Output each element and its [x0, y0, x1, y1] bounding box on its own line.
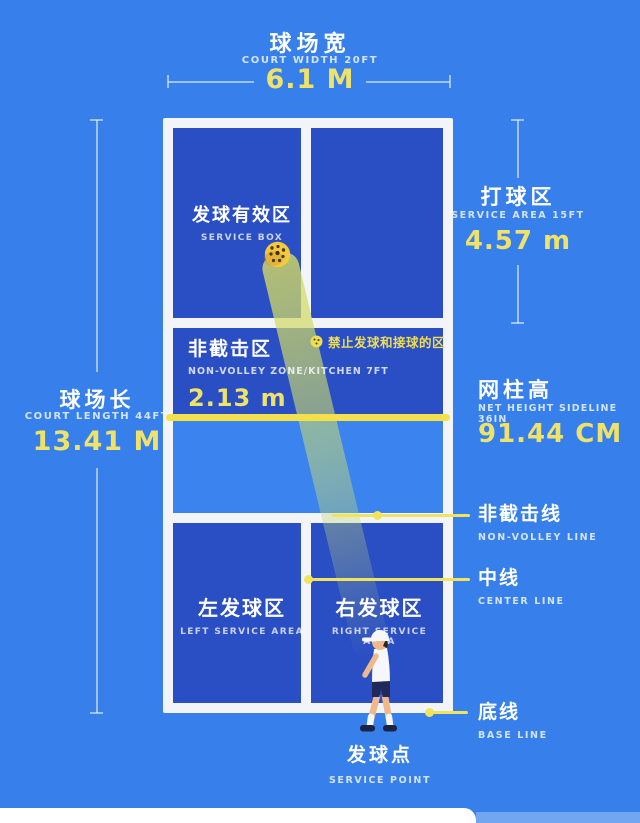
service-area-value: 4.57 m: [465, 226, 571, 256]
left-measure-value-wrap: 13.41 M: [17, 426, 177, 457]
non-volley-line-label-cn: 非截击线: [478, 499, 597, 526]
kitchen-label-en: NON-VOLLEY ZONE/KITCHEN 7FT: [188, 366, 389, 377]
top-measure-tick-left: [167, 75, 169, 88]
pickleball-icon: [264, 241, 291, 268]
far-right-service-box: [311, 128, 443, 318]
service-area-tick-top: [511, 119, 524, 121]
top-measure-value-wrap: 6.1 M: [0, 64, 620, 95]
net-line: [166, 414, 450, 421]
service-area-line-bottom: [517, 265, 519, 323]
base-line-callout: [429, 711, 468, 714]
left-service-label-cn: 左发球区: [178, 592, 306, 621]
center-line-label: 中线 CENTER LINE: [478, 563, 565, 607]
player-figure: [350, 626, 410, 738]
center-line-label-cn: 中线: [478, 563, 565, 590]
service-area-value-wrap: 4.57 m: [438, 226, 598, 256]
service-box-label-en: SERVICE BOX: [178, 233, 306, 243]
no-serve-note-text: 禁止发球和接球的区: [328, 332, 445, 351]
net-height-label-cn: 网柱高: [478, 374, 553, 404]
left-measure-line-top: [96, 120, 98, 372]
base-line-label-en: BASE LINE: [478, 730, 548, 741]
small-ball-icon: [310, 335, 323, 348]
center-line-label-en: CENTER LINE: [478, 596, 565, 607]
court-length-label-cn: 球场长: [17, 384, 177, 414]
service-area-title: 打球区: [438, 181, 598, 211]
non-volley-line-dot: [373, 511, 382, 520]
center-line-callout: [308, 578, 470, 581]
pickleball-court-infographic: 球场宽 COURT WIDTH 20FT 6.1 M 球场长 COURT LEN…: [0, 0, 640, 823]
service-area-tick-bottom: [511, 322, 524, 324]
center-line-dot: [304, 575, 313, 584]
top-measure-line-left: [168, 81, 254, 83]
non-volley-line-label: 非截击线 NON-VOLLEY LINE: [478, 499, 597, 543]
left-measure-title: 球场长: [17, 384, 177, 414]
left-service-label-en: LEFT SERVICE AREA: [178, 627, 306, 637]
court-width-value: 6.1 M: [265, 64, 354, 95]
non-volley-line-label-en: NON-VOLLEY LINE: [478, 532, 597, 543]
left-measure-tick-top: [90, 119, 103, 121]
bottom-light-strip: [476, 812, 640, 823]
service-point-label-cn: 发球点: [300, 740, 460, 767]
service-box-label-cn: 发球有效区: [178, 201, 306, 227]
service-area-label-en: SERVICE AREA 15FT: [438, 210, 598, 221]
top-measure-line-right: [366, 81, 450, 83]
court-width-label-cn: 球场宽: [0, 26, 620, 58]
left-measure-tick-bottom: [90, 712, 103, 714]
service-area-label-cn: 打球区: [438, 181, 598, 211]
service-point-label: 发球点 SERVICE POINT: [300, 740, 460, 786]
service-box-label: 发球有效区 SERVICE BOX: [178, 201, 306, 243]
base-line-dot: [425, 708, 434, 717]
left-measure-subtitle: COURT LENGTH 44FT: [17, 411, 177, 422]
court-length-label-en: COURT LENGTH 44FT: [17, 411, 177, 422]
top-measure-tick-right: [449, 75, 451, 88]
no-serve-note: 禁止发球和接球的区: [310, 332, 445, 351]
net-height-value: 91.44 CM: [478, 419, 622, 449]
top-measure-title: 球场宽: [0, 26, 620, 58]
net-height-title: 网柱高: [478, 374, 553, 404]
left-service-label: 左发球区 LEFT SERVICE AREA: [178, 592, 306, 637]
right-service-label-cn: 右发球区: [316, 592, 443, 621]
base-line-label: 底线 BASE LINE: [478, 697, 548, 741]
service-area-subtitle: SERVICE AREA 15FT: [438, 210, 598, 221]
service-area-line-top: [517, 120, 519, 178]
service-point-label-en: SERVICE POINT: [300, 775, 460, 786]
left-measure-line-bottom: [96, 468, 98, 713]
base-line-label-cn: 底线: [478, 697, 548, 724]
kitchen-value: 2.13 m: [188, 384, 389, 412]
non-volley-line-callout: [332, 514, 470, 517]
net-height-value-wrap: 91.44 CM: [478, 419, 622, 449]
court-length-value: 13.41 M: [33, 426, 162, 457]
bottom-white-strip: [0, 808, 476, 823]
